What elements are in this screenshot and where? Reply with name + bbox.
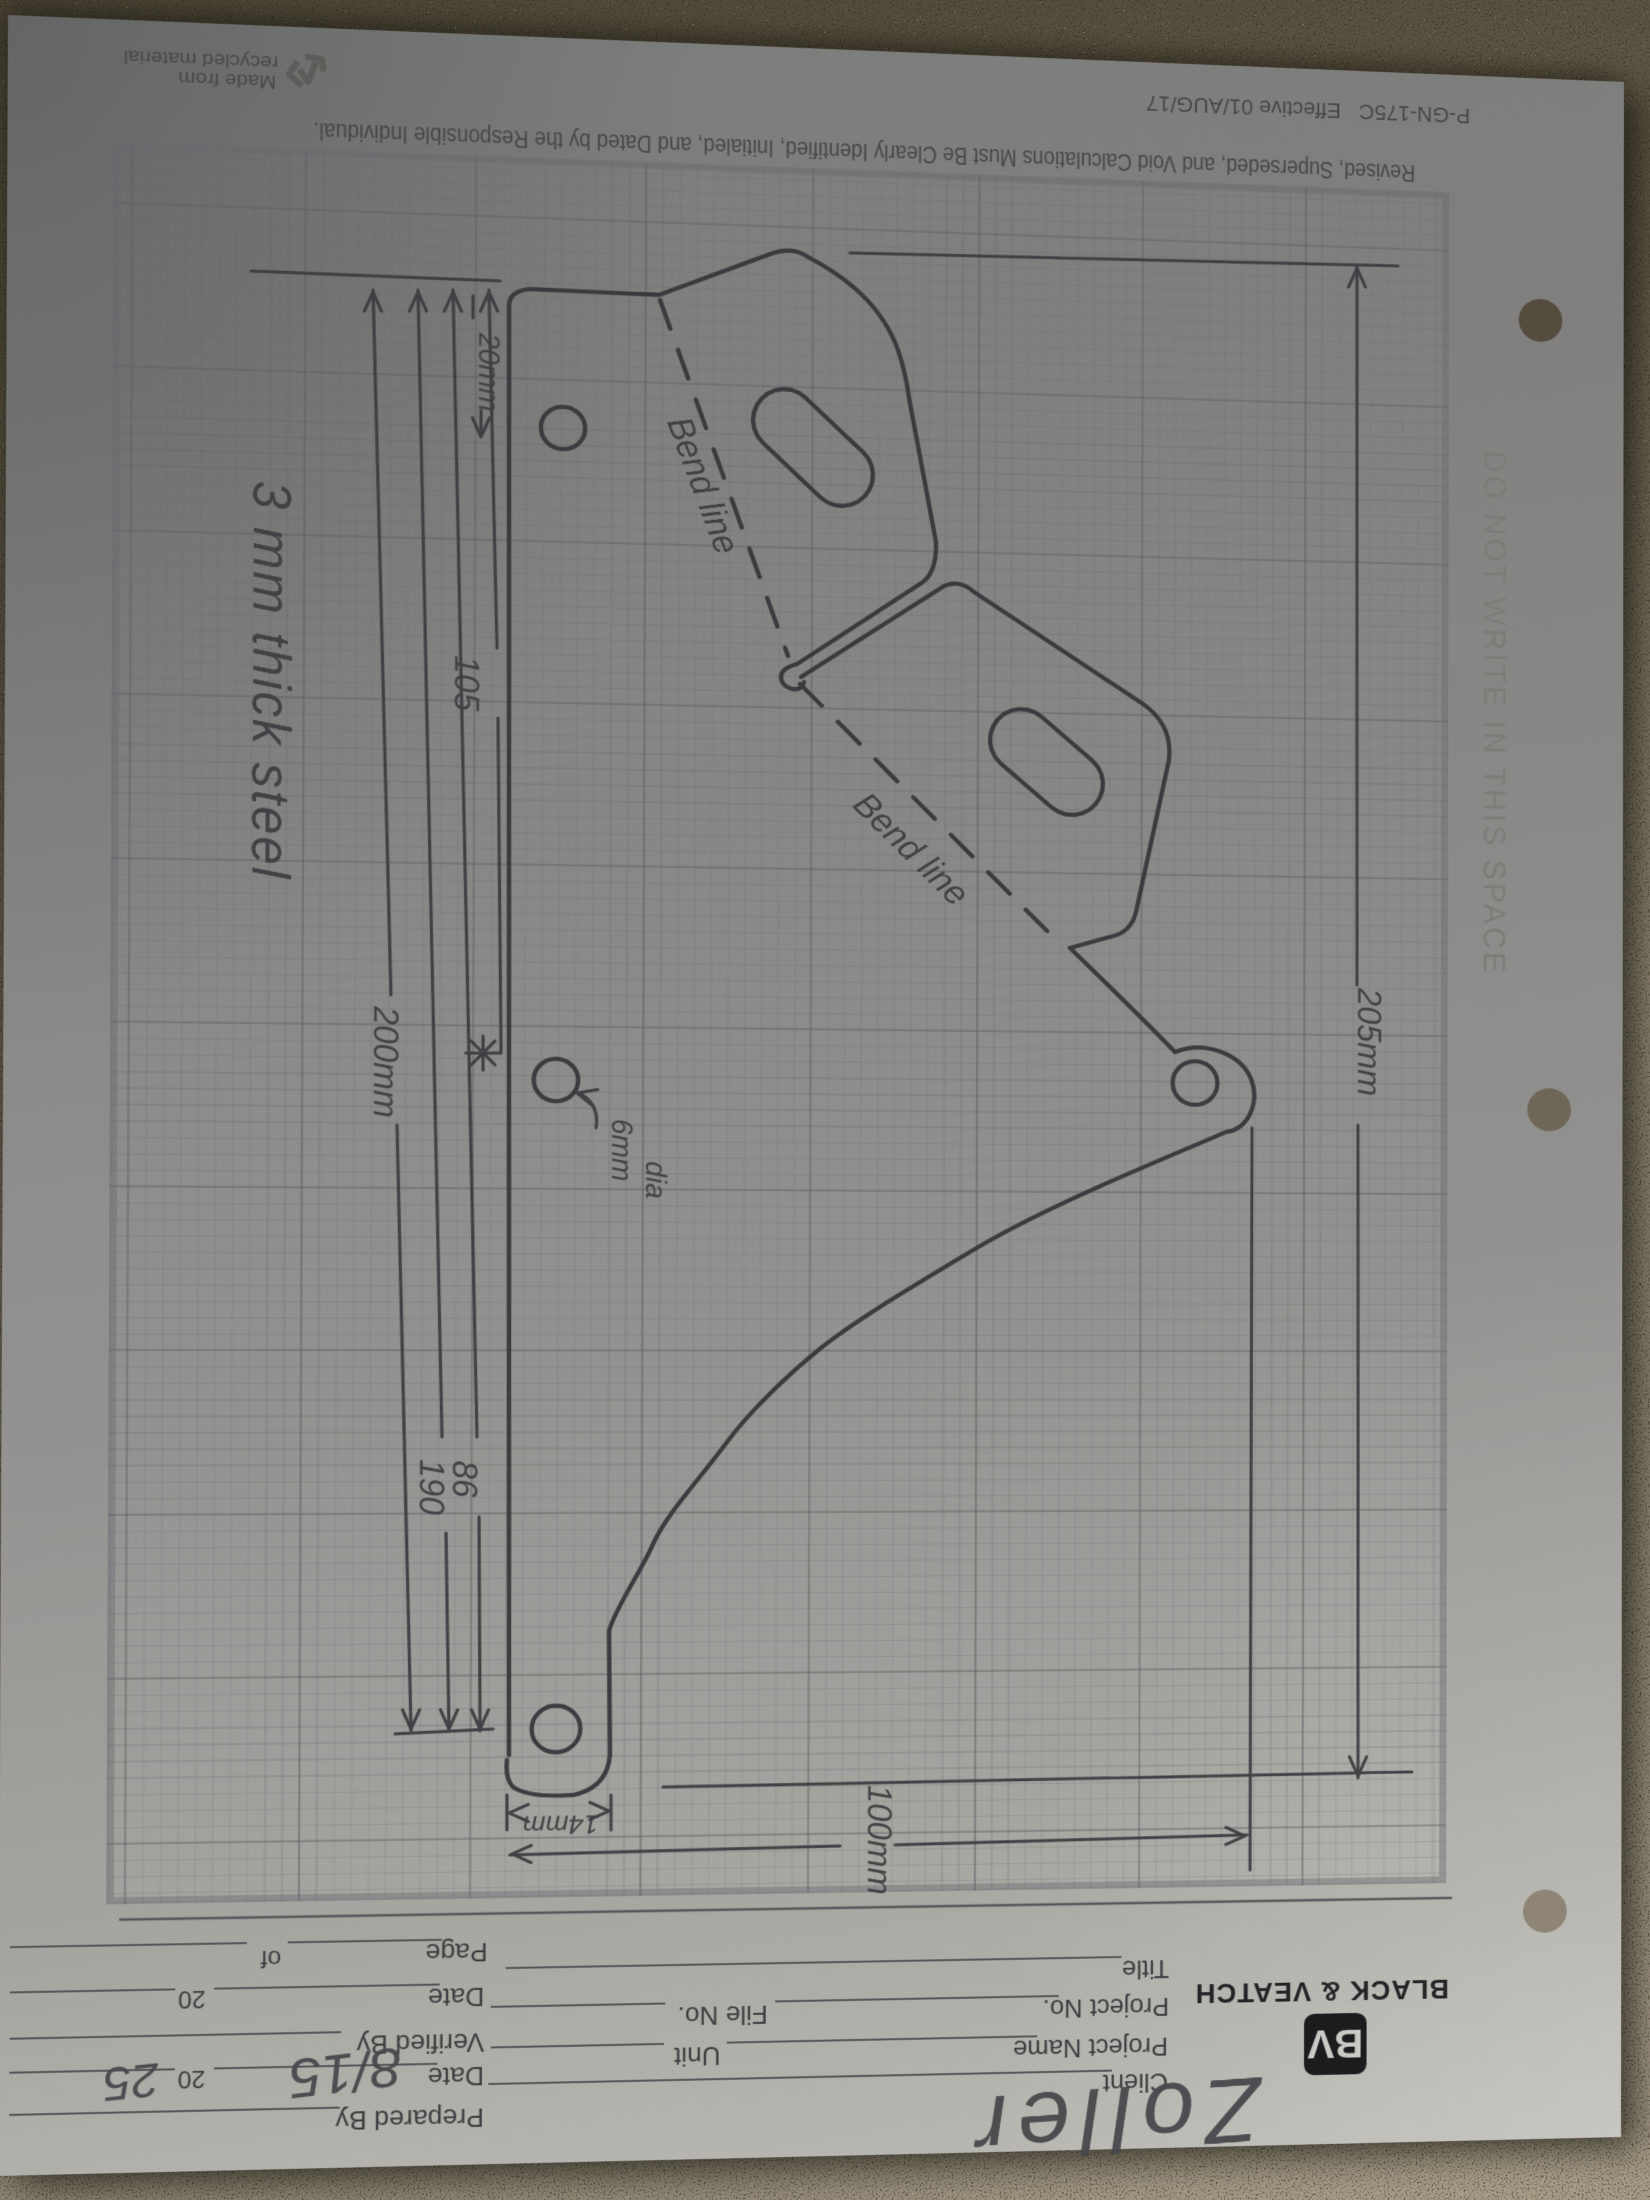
svg-text:20mm: 20mm [473,332,507,412]
svg-text:Title: Title [1122,1954,1169,1982]
svg-text:6mm: 6mm [606,1119,640,1182]
svg-text:BLACK & VEATCH: BLACK & VEATCH [1195,1974,1449,2009]
svg-text:Date: Date [428,2061,484,2090]
svg-text:3 mm thick steel: 3 mm thick steel [240,480,302,881]
svg-text:Project Name: Project Name [1013,2032,1168,2063]
svg-text:Prepared By: Prepared By [335,2102,484,2134]
svg-text:BV: BV [1307,2021,1363,2067]
svg-text:200mm: 200mm [365,1005,405,1118]
svg-text:Bend line: Bend line [845,786,976,914]
svg-text:100mm: 100mm [860,1785,898,1896]
svg-text:recycled material: recycled material [124,45,279,72]
svg-text:Unit: Unit [674,2041,721,2070]
svg-text:Date: Date [428,1982,484,2011]
svg-text:dia: dia [640,1161,673,1199]
svg-text:20: 20 [177,2066,205,2093]
svg-text:Revised, Superseded, and Void: Revised, Superseded, and Void Calculatio… [313,118,1415,186]
svg-text:20: 20 [178,1986,206,2013]
svg-text:File No.: File No. [678,2000,768,2030]
svg-text:DO NOT WRITE IN THIS SPACE: DO NOT WRITE IN THIS SPACE [1477,450,1512,975]
svg-text:205mm: 205mm [1350,987,1387,1097]
svg-text:Bend line: Bend line [659,412,746,559]
svg-text:Project No.: Project No. [1043,1992,1170,2022]
svg-text:P-GN-175C Effective 01/AUG/1: P-GN-175C Effective 01/AUG/17 [1146,91,1470,128]
svg-text:Page: Page [426,1937,488,1966]
svg-text:14mm: 14mm [523,1810,600,1841]
svg-text:25: 25 [101,2053,162,2111]
svg-text:86: 86 [444,1460,483,1498]
svg-text:105: 105 [447,655,486,712]
svg-text:Zoller: Zoller [963,2057,1266,2181]
svg-text:8/15: 8/15 [286,2035,405,2110]
svg-text:of: of [260,1946,281,1973]
